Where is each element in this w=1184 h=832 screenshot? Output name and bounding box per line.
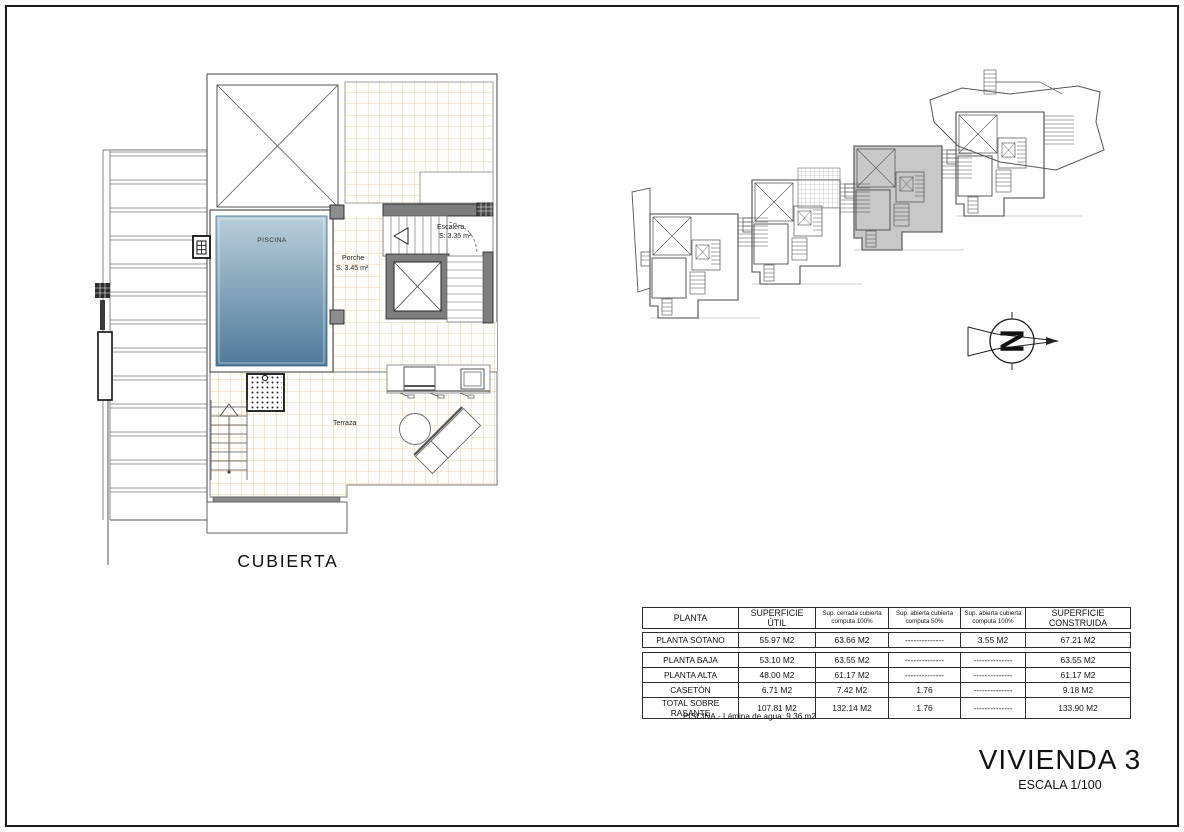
cell: --------------	[889, 653, 961, 668]
garden-drain-icon	[95, 283, 110, 298]
pool-label: PISCINA	[257, 237, 287, 244]
col-header-abierta-100: Sup. abierta cubierta computa 100%	[961, 608, 1026, 629]
swimming-pool	[210, 210, 333, 372]
cell: 7.42 M2	[816, 683, 889, 698]
pool-grille-icon	[193, 236, 210, 258]
cell: PLANTA BAJA	[643, 653, 739, 668]
cell: 53.10 M2	[739, 653, 816, 668]
sheet-scale: ESCALA 1/100	[962, 778, 1158, 792]
cell: 9.18 M2	[1026, 683, 1131, 698]
cell: 63.66 M2	[816, 633, 889, 648]
core-right-wall	[483, 252, 493, 323]
cell: 1.76	[889, 683, 961, 698]
upper-terrace-notch	[420, 172, 493, 203]
title-block: VIVIENDA 3 ESCALA 1/100	[962, 744, 1158, 792]
porch-tiles	[333, 216, 383, 372]
house-unit-1	[641, 214, 768, 318]
cell: --------------	[961, 653, 1026, 668]
cell: 1.76	[889, 698, 961, 719]
cell: 61.17 M2	[816, 668, 889, 683]
col-header-sup-util: SUPERFICIE ÚTIL	[739, 608, 816, 629]
pillar-icon	[330, 205, 344, 219]
equipment-area	[387, 365, 490, 398]
table-row: CASETÓN 6.71 M2 7.42 M2 1.76 -----------…	[643, 683, 1131, 698]
cell: 3.55 M2	[961, 633, 1026, 648]
cell: 67.21 M2	[1026, 633, 1131, 648]
stair-label: Escalera	[437, 224, 464, 231]
lower-step	[207, 502, 347, 533]
garden-steps	[103, 150, 207, 565]
cell: --------------	[889, 668, 961, 683]
cell: --------------	[889, 633, 961, 648]
cell: 6.71 M2	[739, 683, 816, 698]
terrace-label: Terraza	[333, 420, 356, 427]
cell: 132.14 M2	[816, 698, 889, 719]
skylight-void	[217, 85, 338, 207]
unit2-tiles	[798, 168, 840, 208]
garden-wall-bar	[100, 300, 105, 330]
stair-area-label: S: 3.35 m²	[439, 233, 472, 240]
table-row: PLANTA BAJA 53.10 M2 63.55 M2 ----------…	[643, 653, 1131, 668]
pillar-icon	[330, 310, 344, 324]
sheet-title: VIVIENDA 3	[962, 744, 1158, 776]
cell: --------------	[961, 683, 1026, 698]
cell: PLANTA SÓTANO	[643, 633, 739, 648]
cell: 61.17 M2	[1026, 668, 1131, 683]
shower-valve-icon	[262, 375, 267, 380]
col-header-cerrada-100: Sup. cerrada cubierta computa 100%	[816, 608, 889, 629]
garden-planter	[98, 332, 112, 400]
north-letter: N	[994, 329, 1031, 353]
round-table-icon	[400, 414, 431, 445]
cell: 63.55 M2	[816, 653, 889, 668]
cell: --------------	[961, 668, 1026, 683]
site-boundary-left	[632, 188, 650, 292]
stair-core	[383, 216, 493, 323]
shower-tray	[247, 374, 284, 411]
cell: PLANTA ALTA	[643, 668, 739, 683]
table-row: PLANTA SÓTANO 55.97 M2 63.66 M2 --------…	[643, 633, 1131, 648]
cell: --------------	[961, 698, 1026, 719]
cell: 55.97 M2	[739, 633, 816, 648]
hatched-pillar-icon	[477, 203, 493, 216]
col-header-sup-construida: SUPERFICIE CONSTRUIDA	[1026, 608, 1131, 629]
porch-area-label: S: 3.45 m²	[336, 265, 369, 272]
lower-wall-band	[213, 497, 340, 502]
cell: 63.55 M2	[1026, 653, 1131, 668]
cell: 48.00 M2	[739, 668, 816, 683]
mid-tiles	[383, 322, 497, 372]
site-key-plan	[632, 70, 1104, 318]
pool-footnote: PISCINA.- Lámina de agua: 9.36 m2	[683, 712, 816, 721]
areas-table-main: PLANTA BAJA 53.10 M2 63.55 M2 ----------…	[642, 652, 1131, 719]
unit4-upper-stairs	[984, 70, 1062, 94]
north-arrow-icon: N	[968, 312, 1058, 370]
roof-plan	[95, 74, 497, 565]
areas-table-basement: PLANTA SÓTANO 55.97 M2 63.66 M2 --------…	[642, 632, 1131, 648]
wall-band	[383, 204, 477, 216]
plan-title: CUBIERTA	[237, 551, 338, 571]
highlighted-unit-fill	[854, 146, 942, 250]
table-row: PLANTA ALTA 48.00 M2 61.17 M2 ----------…	[643, 668, 1131, 683]
areas-table-header: PLANTA SUPERFICIE ÚTIL Sup. cerrada cubi…	[642, 607, 1131, 629]
porch-label: Porche	[342, 255, 364, 262]
cell: CASETÓN	[643, 683, 739, 698]
col-header-abierta-50: Sup. abierta cubierta computa 50%	[889, 608, 961, 629]
header-row: PLANTA SUPERFICIE ÚTIL Sup. cerrada cubi…	[643, 608, 1131, 629]
cell: 133.90 M2	[1026, 698, 1131, 719]
col-header-planta: PLANTA	[643, 608, 739, 629]
